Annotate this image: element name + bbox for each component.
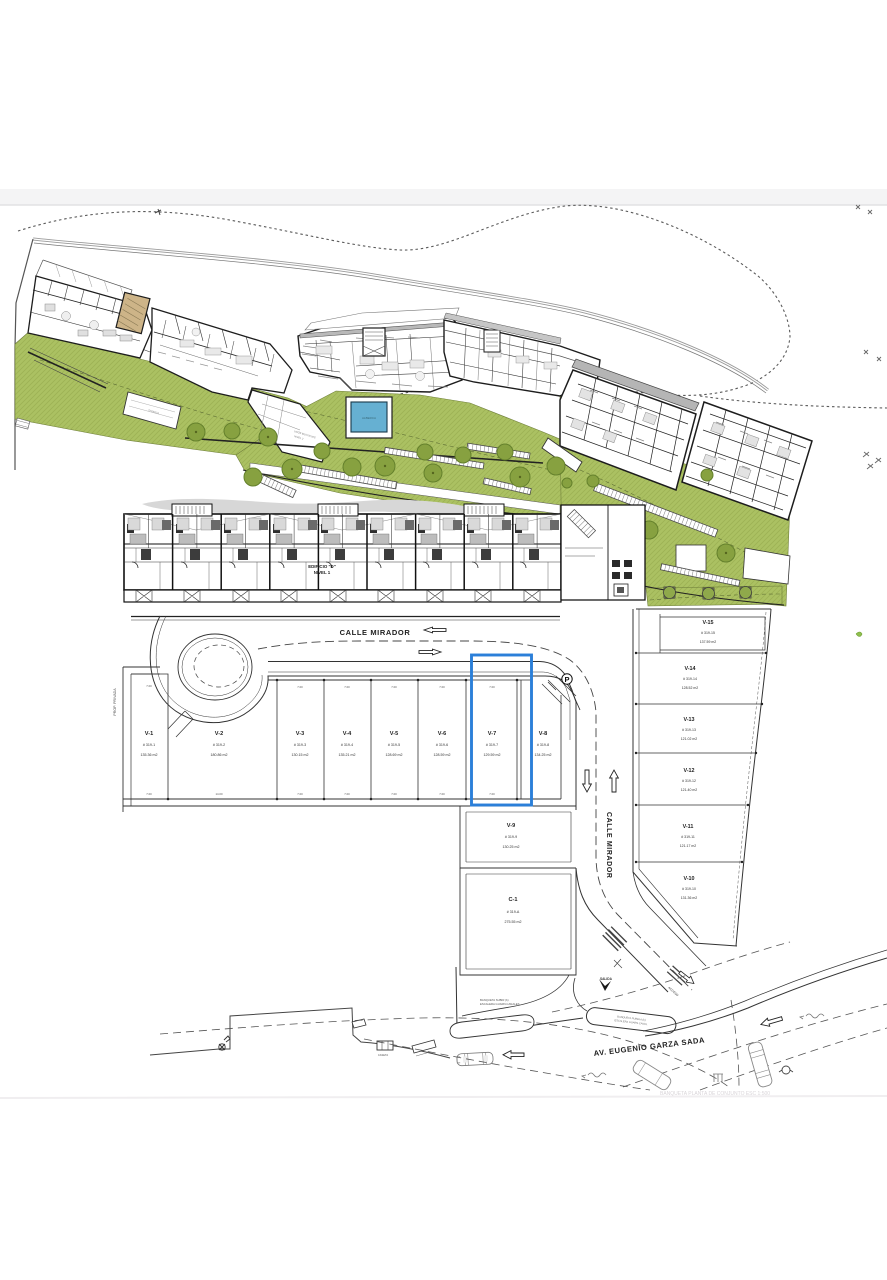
svg-text:129.59 m2: 129.59 m2 xyxy=(484,753,501,757)
svg-text:# 319-11: # 319-11 xyxy=(681,835,695,839)
svg-text:# 319-A: # 319-A xyxy=(507,910,520,914)
svg-text:V-9: V-9 xyxy=(507,823,515,829)
svg-text:128.52 m2: 128.52 m2 xyxy=(682,686,699,690)
svg-text:7.00: 7.00 xyxy=(344,685,350,689)
svg-text:135.21 m2: 135.21 m2 xyxy=(339,753,356,757)
svg-text:275.55 m2: 275.55 m2 xyxy=(505,920,522,924)
svg-text:7.00: 7.00 xyxy=(391,685,397,689)
svg-text:7.00: 7.00 xyxy=(391,792,397,796)
svg-text:121.40 m2: 121.40 m2 xyxy=(681,788,698,792)
svg-text:V-11: V-11 xyxy=(683,824,694,830)
svg-text:7.00: 7.00 xyxy=(297,792,303,796)
svg-text:135.36 m2: 135.36 m2 xyxy=(141,753,158,757)
svg-text:ALBERCA: ALBERCA xyxy=(362,416,376,420)
svg-text:134.25 m2: 134.25 m2 xyxy=(535,753,552,757)
svg-text:V-15: V-15 xyxy=(702,620,713,626)
svg-text:# 319-2: # 319-2 xyxy=(213,743,225,747)
svg-text:7.00: 7.00 xyxy=(439,685,445,689)
svg-text:# 319-15: # 319-15 xyxy=(701,631,715,635)
svg-text:V-10: V-10 xyxy=(683,876,694,882)
svg-text:CALLE MIRADOR: CALLE MIRADOR xyxy=(605,812,612,879)
svg-text:# 319-4: # 319-4 xyxy=(341,743,353,747)
svg-text:ESCALERA GUARN.CANALES: ESCALERA GUARN.CANALES xyxy=(480,1002,520,1006)
svg-text:# 319-12: # 319-12 xyxy=(682,779,696,783)
svg-text:7.00: 7.00 xyxy=(439,792,445,796)
svg-text:121.17 m2: 121.17 m2 xyxy=(680,844,697,848)
svg-text:137.59 m2: 137.59 m2 xyxy=(700,640,717,644)
svg-text:EDIFICIO "D": EDIFICIO "D" xyxy=(308,564,336,569)
svg-text:PROP. PRIVADA: PROP. PRIVADA xyxy=(113,688,117,716)
svg-text:130.15 m2: 130.15 m2 xyxy=(292,753,309,757)
svg-text:130.25 m2: 130.25 m2 xyxy=(503,845,520,849)
svg-text:V-3: V-3 xyxy=(296,731,304,737)
svg-text:121.02 m2: 121.02 m2 xyxy=(681,737,698,741)
svg-text:NIVEL 1: NIVEL 1 xyxy=(314,570,331,575)
svg-text:V-2: V-2 xyxy=(215,731,223,737)
svg-text:V-1: V-1 xyxy=(145,731,153,737)
svg-text:# 319-10: # 319-10 xyxy=(682,887,696,891)
svg-text:131.36 m2: 131.36 m2 xyxy=(681,896,698,900)
svg-text:V-13: V-13 xyxy=(683,717,694,723)
svg-text:V-12: V-12 xyxy=(683,768,694,774)
svg-text:V-14: V-14 xyxy=(684,666,695,672)
svg-text:7.00: 7.00 xyxy=(146,684,152,688)
svg-text:180.86 m2: 180.86 m2 xyxy=(211,753,228,757)
svg-text:V-8: V-8 xyxy=(539,731,547,737)
svg-text:CASETA: CASETA xyxy=(378,1053,388,1057)
svg-text:# 319-13: # 319-13 xyxy=(682,728,696,732)
svg-text:7.00: 7.00 xyxy=(344,792,350,796)
svg-text:128.69 m2: 128.69 m2 xyxy=(386,753,403,757)
svg-text:# 319-14: # 319-14 xyxy=(683,677,697,681)
svg-text:# 319-3: # 319-3 xyxy=(294,743,306,747)
svg-text:BANQUETA PLANTA DE CONJUNTO ES: BANQUETA PLANTA DE CONJUNTO ESC 1:500 xyxy=(660,1091,770,1097)
svg-text:V-7: V-7 xyxy=(488,731,496,737)
svg-text:CALLE MIRADOR: CALLE MIRADOR xyxy=(340,628,411,637)
svg-text:V-4: V-4 xyxy=(343,731,352,737)
svg-text:V-5: V-5 xyxy=(390,731,398,737)
svg-text:# 319-8: # 319-8 xyxy=(537,743,549,747)
svg-text:# 319-1: # 319-1 xyxy=(143,743,155,747)
svg-text:# 319-9: # 319-9 xyxy=(505,835,517,839)
svg-text:# 319-5: # 319-5 xyxy=(388,743,400,747)
svg-text:C-1: C-1 xyxy=(508,897,517,903)
svg-text:128.59 m2: 128.59 m2 xyxy=(434,753,451,757)
svg-text:V-6: V-6 xyxy=(438,731,446,737)
svg-text:SALIDA: SALIDA xyxy=(600,977,613,981)
svg-text:# 319-6: # 319-6 xyxy=(436,743,448,747)
svg-text:7.00: 7.00 xyxy=(489,685,495,689)
svg-text:7.00: 7.00 xyxy=(489,792,495,796)
svg-text:P: P xyxy=(564,675,569,684)
svg-text:14.00: 14.00 xyxy=(216,792,223,796)
svg-text:# 319-7: # 319-7 xyxy=(486,743,498,747)
svg-text:7.00: 7.00 xyxy=(146,792,152,796)
svg-text:7.00: 7.00 xyxy=(297,685,303,689)
